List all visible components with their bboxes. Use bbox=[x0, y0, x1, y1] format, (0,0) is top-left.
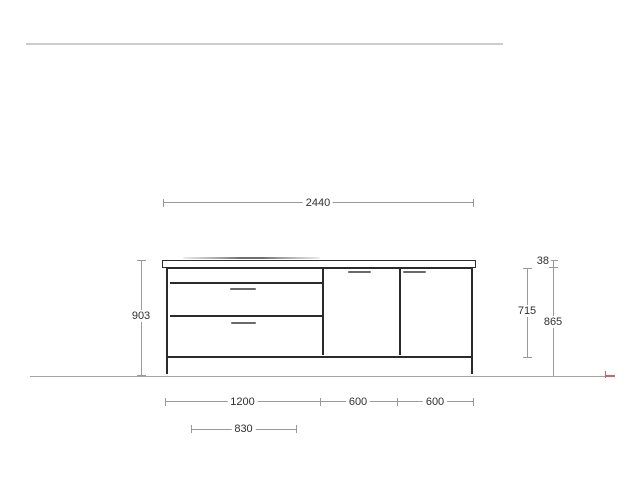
dim-tick bbox=[523, 268, 532, 269]
top-reference-line bbox=[26, 43, 503, 45]
middle-drawer-handle[interactable] bbox=[230, 288, 256, 290]
dimension-label-right-door-width: 600 bbox=[423, 396, 447, 408]
dimension-label-total-width: 2440 bbox=[303, 197, 333, 209]
dimension-label-drawer-unit-width: 1200 bbox=[227, 396, 257, 408]
middle-door-front[interactable] bbox=[324, 269, 399, 355]
dimension-label-middle-door-width: 600 bbox=[346, 396, 370, 408]
top-drawer-front[interactable] bbox=[170, 269, 321, 282]
dim-tick bbox=[165, 398, 166, 406]
dim-tick bbox=[549, 267, 558, 268]
dim-tick bbox=[473, 398, 474, 406]
right-door-handle[interactable] bbox=[403, 271, 426, 273]
worktop[interactable] bbox=[162, 260, 476, 268]
dim-tick bbox=[320, 398, 321, 406]
dim-tick bbox=[137, 260, 146, 261]
middle-door-handle[interactable] bbox=[348, 271, 371, 273]
dim-tick bbox=[137, 375, 146, 376]
dim-tick bbox=[397, 398, 398, 406]
right-plinth-leg bbox=[471, 358, 473, 374]
elevation-drawing-canvas: 2440 903 715 bbox=[0, 0, 640, 480]
dim-tick bbox=[163, 199, 164, 207]
dim-tick bbox=[296, 425, 297, 433]
hob-profile[interactable] bbox=[183, 257, 320, 259]
wall-end-marker-icon bbox=[605, 375, 616, 377]
bottom-drawer-handle[interactable] bbox=[231, 322, 256, 324]
left-plinth-leg bbox=[166, 358, 168, 374]
dimension-label-worktop-thickness: 38 bbox=[535, 255, 551, 267]
dimension-label-total-height: 903 bbox=[129, 310, 153, 322]
dimension-label-front-height: 715 bbox=[515, 305, 539, 317]
dim-tick bbox=[191, 425, 192, 433]
dim-tick bbox=[473, 199, 474, 207]
cabinet-front bbox=[166, 268, 473, 358]
dimension-label-carcass-height: 865 bbox=[541, 316, 565, 328]
dimension-label-hob-width: 830 bbox=[231, 423, 255, 435]
floor-line bbox=[30, 376, 606, 378]
dim-tick bbox=[523, 357, 532, 358]
right-door-front[interactable] bbox=[401, 269, 471, 355]
